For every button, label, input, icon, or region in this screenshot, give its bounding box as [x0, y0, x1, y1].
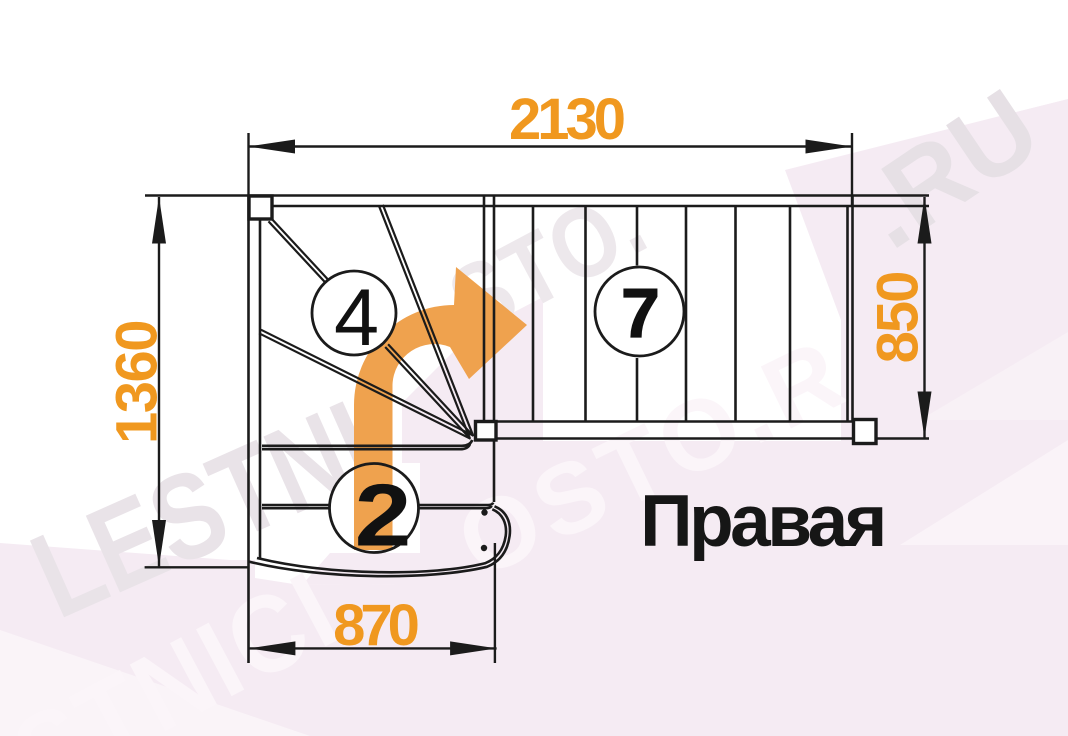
- svg-text:4: 4: [334, 273, 379, 363]
- svg-text:2: 2: [355, 467, 412, 565]
- svg-text:7: 7: [621, 274, 660, 352]
- svg-text:2130: 2130: [509, 87, 624, 152]
- svg-text:1360: 1360: [105, 321, 170, 444]
- svg-text:Правая: Правая: [640, 481, 884, 562]
- svg-text:850: 850: [866, 273, 931, 364]
- svg-text:870: 870: [333, 593, 418, 658]
